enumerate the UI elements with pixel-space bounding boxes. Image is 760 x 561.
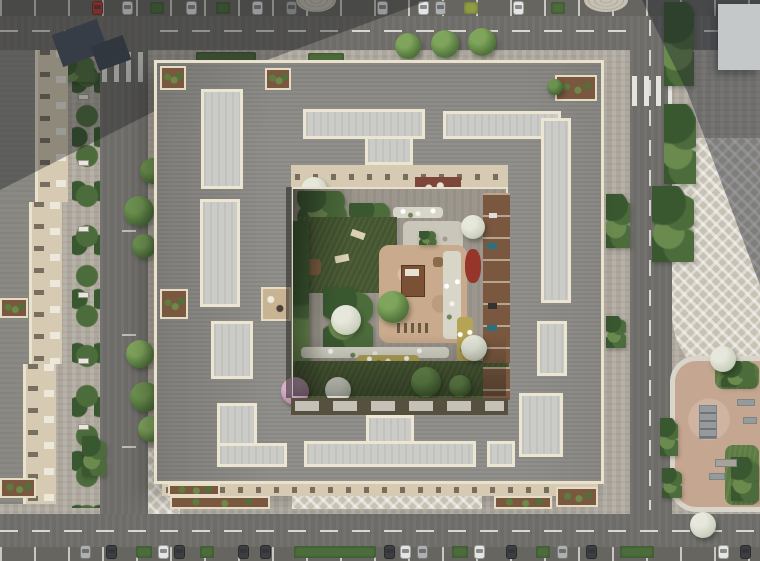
parking-hedge — [620, 546, 654, 558]
roof-terrace — [160, 289, 188, 319]
road-mark — [122, 334, 136, 336]
flowering-tree — [690, 512, 716, 538]
courtyard-shrubs — [419, 231, 437, 245]
roof-panel — [366, 415, 414, 444]
front-garden — [168, 484, 220, 496]
roof-panel — [201, 89, 243, 189]
street-bench — [78, 94, 89, 100]
parked-car — [435, 1, 446, 15]
parking-hedge — [200, 546, 214, 558]
parked-car — [186, 1, 197, 15]
street-bench — [78, 160, 89, 166]
parked-car — [740, 545, 751, 559]
terrace-furniture — [487, 325, 497, 331]
flower-bed — [393, 207, 443, 218]
terrace-furniture — [487, 243, 497, 249]
parked-car — [92, 1, 103, 15]
street-tree — [468, 28, 496, 56]
street-tree — [431, 30, 459, 58]
shrub-cluster — [606, 194, 630, 248]
parked-car — [80, 545, 91, 559]
terrace-strip — [483, 193, 510, 363]
parked-car — [586, 545, 597, 559]
park-playground — [670, 356, 760, 512]
roof-panel — [541, 118, 571, 303]
neighbor-building-roof — [0, 202, 32, 364]
parked-car — [238, 545, 249, 559]
courtyard-tree — [411, 367, 441, 397]
parked-car — [400, 545, 411, 559]
street-bench — [78, 226, 89, 232]
roof-panel — [365, 136, 413, 165]
courtyard-tree — [449, 375, 471, 397]
roof-terrace — [160, 66, 186, 90]
play-rail — [743, 417, 757, 424]
front-garden — [556, 487, 598, 507]
facade-balconies — [56, 50, 66, 202]
front-garden — [0, 298, 28, 318]
parked-car — [260, 545, 271, 559]
tower-roof — [718, 4, 760, 70]
neighbor-building-facade — [32, 202, 62, 364]
parked-car — [718, 545, 729, 559]
road-mark — [122, 230, 136, 232]
parked-car — [286, 1, 297, 15]
parked-car — [557, 545, 568, 559]
roof-terrace — [265, 68, 291, 90]
facade-windows — [295, 174, 504, 180]
street-tree — [124, 196, 154, 226]
parked-car — [174, 545, 185, 559]
parked-car — [252, 1, 263, 15]
shrub-cluster — [652, 186, 694, 262]
roof-panel — [217, 443, 287, 467]
skate-ramp — [699, 405, 717, 439]
facade-courtyard-west — [286, 187, 292, 398]
parked-car — [377, 1, 388, 15]
road-left — [100, 16, 148, 520]
parking-hedge — [136, 546, 152, 558]
sun-lounger — [350, 229, 366, 240]
flowering-tree — [710, 346, 736, 372]
shrub-cluster — [82, 436, 106, 476]
parking-hedge — [551, 2, 565, 14]
facade-windows — [34, 202, 44, 364]
parked-car — [418, 1, 429, 15]
road-mark — [122, 446, 136, 448]
parked-car — [384, 545, 395, 559]
street-bench — [78, 292, 89, 298]
roof-panel — [537, 321, 567, 376]
facade-windows — [40, 50, 50, 202]
bench-row — [397, 323, 431, 333]
street-tree — [395, 33, 421, 59]
front-garden — [170, 496, 270, 509]
parked-car — [506, 545, 517, 559]
neighbor-building-roof — [0, 50, 38, 202]
shrub-cluster — [606, 316, 626, 348]
street-tree — [126, 340, 154, 368]
balcony-row — [295, 401, 504, 411]
roof-panel — [519, 393, 563, 457]
parking-hedge — [464, 2, 478, 14]
parked-car — [513, 1, 524, 15]
facade-balconies — [50, 202, 60, 364]
red-shrub — [465, 249, 481, 283]
terrace-strip — [483, 367, 510, 400]
shrub-cluster — [664, 2, 694, 86]
facade-street-south — [162, 484, 598, 496]
front-garden — [0, 478, 36, 498]
front-garden — [494, 496, 552, 509]
street-tree — [132, 234, 156, 258]
facade-windows — [166, 487, 594, 493]
park-edge-shrub — [662, 468, 682, 498]
parking-hedge — [536, 546, 550, 558]
play-element — [433, 257, 443, 267]
roof-panel — [303, 109, 425, 139]
roof-panel — [211, 321, 253, 379]
street-bench — [78, 424, 89, 430]
courtyard-tree — [377, 291, 409, 323]
parked-car — [474, 545, 485, 559]
flowering-tree — [331, 305, 361, 335]
terrace-furniture — [489, 213, 497, 218]
roof-panel — [487, 441, 515, 467]
parked-car — [158, 545, 169, 559]
flowering-tree — [461, 335, 487, 361]
facade-balconies — [44, 364, 54, 504]
neighbor-building-facade — [38, 50, 68, 202]
main-building — [154, 60, 604, 484]
parking-hedge — [216, 2, 230, 14]
parked-car — [106, 545, 117, 559]
terrace-tree — [547, 79, 563, 95]
parked-car — [122, 1, 133, 15]
play-structure — [401, 265, 425, 297]
courtyard — [291, 187, 508, 398]
play-rail — [737, 399, 755, 406]
parking-hedge — [452, 546, 468, 558]
park-bench — [715, 459, 737, 467]
entrance-paving — [292, 496, 482, 509]
roof-panel — [200, 199, 240, 307]
parked-car — [417, 545, 428, 559]
park-bench — [709, 473, 725, 480]
facade-courtyard-south — [291, 398, 508, 415]
terrace-furniture — [488, 303, 497, 309]
lane-divider-bottom — [0, 530, 760, 532]
park-edge-shrub — [660, 418, 678, 456]
parking-hedge — [150, 2, 164, 14]
street-bench — [78, 358, 89, 364]
sun-lounger — [334, 254, 349, 264]
roof-panel — [304, 441, 476, 467]
aerial-render-scene — [0, 0, 760, 561]
parking-hedge — [294, 546, 376, 558]
flowering-tree — [461, 215, 485, 239]
shrub-cluster — [664, 104, 696, 184]
